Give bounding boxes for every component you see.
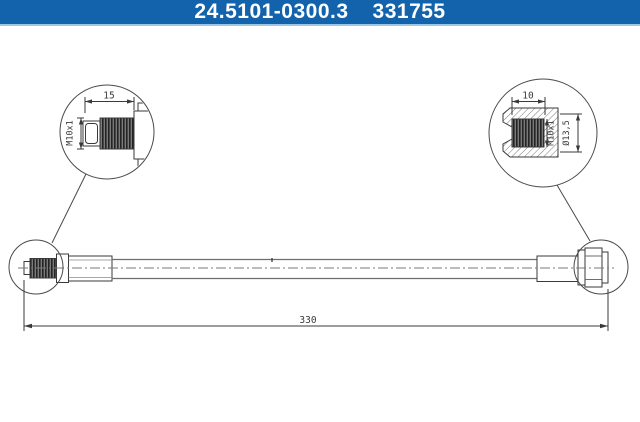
left-detail-thread <box>100 118 134 149</box>
left-thread-length-label: 15 <box>103 91 114 102</box>
right-detail-view: 10 M10x1 Ø13,5 <box>489 79 597 187</box>
left-thread-size-label: M10x1 <box>66 120 76 146</box>
header-bar: 24.5101-0300.3 331755 <box>0 0 640 26</box>
right-thread-size-label: M10x1 <box>547 120 557 146</box>
part-number: 24.5101-0300.3 <box>194 0 348 24</box>
right-detail-thread-bore <box>512 119 544 147</box>
overall-length-dimension: 330 <box>24 280 608 331</box>
technical-drawing: 15 M10x1 <box>0 26 640 422</box>
right-fitting <box>537 248 608 287</box>
right-thread-depth-label: 10 <box>522 91 534 102</box>
overall-length-label: 330 <box>299 315 316 326</box>
ean-number: 331755 <box>373 0 446 24</box>
right-leader-line <box>557 185 590 241</box>
left-detail-view: 15 M10x1 <box>60 85 160 179</box>
product-drawing-page: 24.5101-0300.3 331755 <box>0 0 640 422</box>
right-diameter-label: Ø13,5 <box>561 120 572 146</box>
left-leader-line <box>52 174 86 243</box>
hose-assembly <box>9 174 628 294</box>
